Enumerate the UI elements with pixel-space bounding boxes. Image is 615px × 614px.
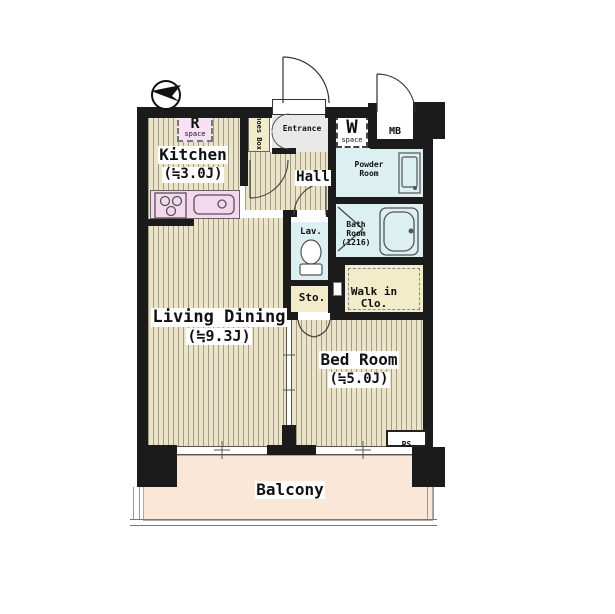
north-arrow-icon	[151, 81, 181, 109]
entrance-label: Entrance	[279, 125, 325, 134]
wall-counter-stub	[148, 219, 194, 226]
bed-room-size: (≒5.0J)	[328, 372, 389, 388]
balcony-label: Balcony	[248, 481, 332, 499]
wall-left	[137, 107, 148, 455]
living-dining-name: Living Dining	[151, 308, 286, 327]
kitchen-size: (≒3.0J)	[162, 167, 223, 183]
pillar-bottom-right	[412, 447, 445, 487]
powder-room-name: Powder Room	[355, 160, 384, 178]
meter-box-label: MB	[389, 126, 401, 137]
wall-entrance-step	[272, 148, 296, 154]
walk-in-closet-name: Walk in Clo.	[351, 285, 397, 310]
bath-room-size: (1216)	[342, 238, 371, 247]
balcony-rail-left	[133, 487, 140, 520]
wall-hall-lav-b	[326, 210, 336, 217]
bath-room-label: Bath Room (1216)	[337, 221, 375, 248]
wall-top-right-block	[413, 102, 445, 139]
bed-room-label: Bed Room (≒5.0J)	[314, 351, 404, 388]
powder-room-label: Powder Room	[347, 161, 391, 179]
bed-room-name: Bed Room	[319, 351, 398, 369]
r-space-letter: R	[190, 116, 199, 131]
storage-name: Sto.	[299, 291, 326, 304]
lavatory-name: Lav.	[300, 227, 322, 237]
living-dining-label: Living Dining (≒9.3J)	[150, 308, 288, 345]
meter-box: MB	[377, 103, 413, 139]
wall-powder-bath	[336, 197, 423, 204]
hall-label: Hall	[291, 167, 335, 186]
window-living-balcony	[177, 446, 267, 455]
living-dining-size: (≒9.3J)	[186, 328, 251, 345]
w-space-word: space	[341, 137, 362, 144]
balcony-railing	[130, 519, 437, 526]
balcony-rail-right	[427, 487, 434, 520]
hall-name: Hall	[295, 170, 331, 186]
window-bedroom-balcony	[316, 446, 412, 455]
balcony-name: Balcony	[255, 481, 324, 499]
closet-marker	[333, 282, 342, 296]
bath-room-name: Bath Room	[346, 220, 365, 238]
wall-top-left	[137, 107, 272, 118]
pillar-bottom-left	[137, 445, 177, 487]
entrance-door-threshold	[272, 99, 326, 115]
pipe-shaft-label: PS	[402, 440, 412, 449]
wall-right	[423, 139, 433, 450]
storage-label: Sto.	[296, 292, 328, 304]
lavatory-label: Lav.	[297, 227, 325, 237]
r-space-word: space	[184, 131, 205, 138]
wall-lav-left	[283, 210, 291, 313]
wall-below-mb	[370, 139, 425, 149]
washer-space: W space	[336, 114, 368, 148]
wall-bath-wic	[336, 257, 423, 265]
kitchen-name: Kitchen	[158, 146, 227, 164]
floor-plan: Shoes Box R space W space MB	[0, 0, 615, 614]
entrance-door-swing	[283, 57, 329, 103]
w-space-letter: W	[346, 118, 357, 137]
pipe-shaft: PS	[386, 430, 427, 447]
kitchen-counter	[150, 190, 240, 219]
partition-post	[282, 425, 296, 452]
kitchen-label: Kitchen (≒3.0J)	[152, 146, 234, 183]
wall-shoesbox-left	[240, 110, 248, 186]
wall-bottom-b	[330, 312, 433, 320]
wall-lav-sto	[283, 280, 332, 286]
entrance-name: Entrance	[283, 124, 322, 133]
walk-in-closet-label: Walk in Clo.	[349, 286, 399, 311]
